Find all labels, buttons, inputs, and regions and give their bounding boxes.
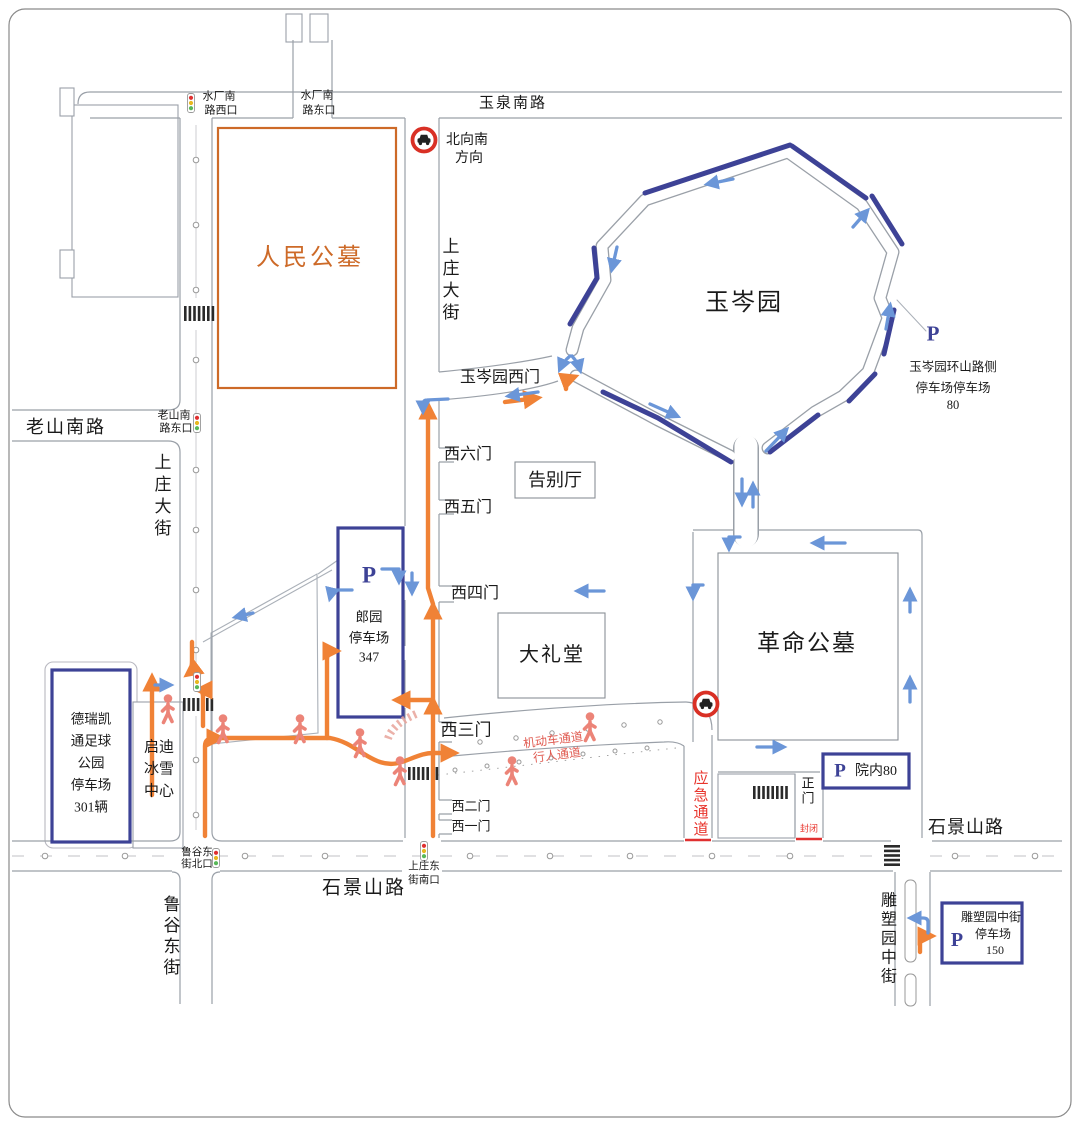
parking-deruikaitong-line4: 停车场 xyxy=(71,778,112,792)
intersection-laoshan-east-line1: 老山南 xyxy=(158,411,191,422)
place-qidi-line2: 冰雪 xyxy=(144,763,174,778)
pedestrian-icon xyxy=(507,756,518,784)
parking-langyuan-line1: 郎园 xyxy=(356,610,383,624)
gate-label-west-1: 西一门 xyxy=(451,820,490,833)
place-label-yucen-garden: 玉岑园 xyxy=(705,291,783,315)
yucen-ring-road xyxy=(570,145,926,536)
parking-diaosuyuan-line2: 停车场 xyxy=(975,928,1011,940)
traffic-light-icon xyxy=(194,414,201,433)
parking-langyuan-line2: 停车场 xyxy=(349,631,390,645)
place-qidi-line1: 启迪 xyxy=(144,741,174,756)
intersection-shangzhuang-south-line1: 上庄东 xyxy=(408,862,440,873)
place-label-revolution-cemetery: 革命公墓 xyxy=(757,632,857,655)
gate-label-yucen-west: 玉岑园西门 xyxy=(460,370,540,386)
intersection-lugu-north-line1: 鲁谷东 xyxy=(181,848,213,859)
area-boxes xyxy=(52,128,1022,963)
place-qidi-line3: 中心 xyxy=(144,785,174,800)
parking-p-langyuan: P xyxy=(362,564,376,587)
traffic-light-icon xyxy=(213,849,220,868)
traffic-light-icon xyxy=(421,842,428,861)
gate-label-west-5: 西五门 xyxy=(444,500,492,516)
road-label-yuquan-south: 玉泉南路 xyxy=(479,97,547,112)
intersection-shangzhuang-south-line2: 街南口 xyxy=(408,876,440,887)
intersection-shuichang-east-line1: 水厂南 xyxy=(301,91,334,102)
closure-marks xyxy=(685,839,822,840)
parking-huanshan-line2: 停车场停车场 xyxy=(915,382,990,395)
intersection-laoshan-east-line2: 路东口 xyxy=(160,424,193,435)
road-label-shangzhuang-east: 上庄大街 xyxy=(441,237,458,325)
road-label-shijingshan-bottom: 石景山路 xyxy=(322,879,406,898)
parking-diaosuyuan-line3: 150 xyxy=(986,944,1004,956)
cemetery-traffic-map: 玉泉南路 人民公墓 玉岑园 革命公墓 大礼堂 告别厅 老山南路 石景山路 石景山… xyxy=(0,0,1080,1126)
intersection-shuichang-west-line1: 水厂南 xyxy=(203,92,236,103)
notice-emergency-channel: 应急通道 xyxy=(692,770,707,838)
intersection-shuichang-east-line2: 路东口 xyxy=(303,106,336,117)
main-gate-forecourt xyxy=(718,774,795,838)
pedestrian-icon xyxy=(395,756,406,784)
parking-leader-line xyxy=(897,300,926,331)
notice-north-to-south-line2: 方向 xyxy=(455,152,483,166)
gate-label-west-6: 西六门 xyxy=(444,447,492,463)
parking-p-huanshan: P xyxy=(927,324,940,345)
place-label-great-hall: 大礼堂 xyxy=(519,645,585,665)
no-entry-sign-icon xyxy=(695,693,718,716)
parking-diaosuyuan-line1: 雕塑园中街 xyxy=(961,911,1021,923)
gate-label-west-4: 西四门 xyxy=(451,586,499,602)
parking-p-yuannei: P xyxy=(834,762,846,781)
road-label-lugu-east: 鲁谷东街 xyxy=(162,895,179,979)
parking-deruikaitong-line2: 通足球 xyxy=(71,734,112,748)
notice-closed: 封闭 xyxy=(800,825,818,834)
traffic-light-icon xyxy=(188,94,195,113)
pedestrian-icon xyxy=(585,712,596,740)
parking-deruikaitong-line1: 德瑞凯 xyxy=(71,712,112,726)
place-label-renmin-cemetery: 人民公墓 xyxy=(256,246,364,270)
parking-deruikaitong-line3: 公园 xyxy=(78,756,105,770)
parking-deruikaitong-line5: 301辆 xyxy=(74,800,108,814)
road-label-diaosuyuan-mid: 雕塑园中街 xyxy=(878,892,894,987)
intersection-lugu-north-line2: 街北口 xyxy=(181,860,213,871)
traffic-light-icon xyxy=(194,673,201,692)
road-label-shijingshan-right: 石景山路 xyxy=(928,818,1004,836)
parking-p-diaosuyuan: P xyxy=(951,930,963,950)
parking-huanshan-line1: 玉岑园环山路侧 xyxy=(909,361,997,374)
parking-langyuan-line3: 347 xyxy=(359,650,379,664)
intersection-shuichang-west-line2: 路西口 xyxy=(205,106,238,117)
road-label-laoshan-south: 老山南路 xyxy=(26,418,106,436)
gate-label-main-gate: 正门 xyxy=(801,776,814,806)
gate-label-west-3: 西三门 xyxy=(441,722,492,739)
parking-huanshan-line3: 80 xyxy=(947,399,960,412)
parking-yuannei-label: 院内80 xyxy=(855,765,897,779)
place-label-farewell-hall: 告别厅 xyxy=(528,471,582,489)
no-entry-sign-icon xyxy=(413,129,436,152)
gate-label-west-2: 西二门 xyxy=(451,800,490,813)
notice-north-to-south-line1: 北向南 xyxy=(446,134,488,148)
road-label-shangzhuang-west: 上庄大街 xyxy=(153,453,170,541)
